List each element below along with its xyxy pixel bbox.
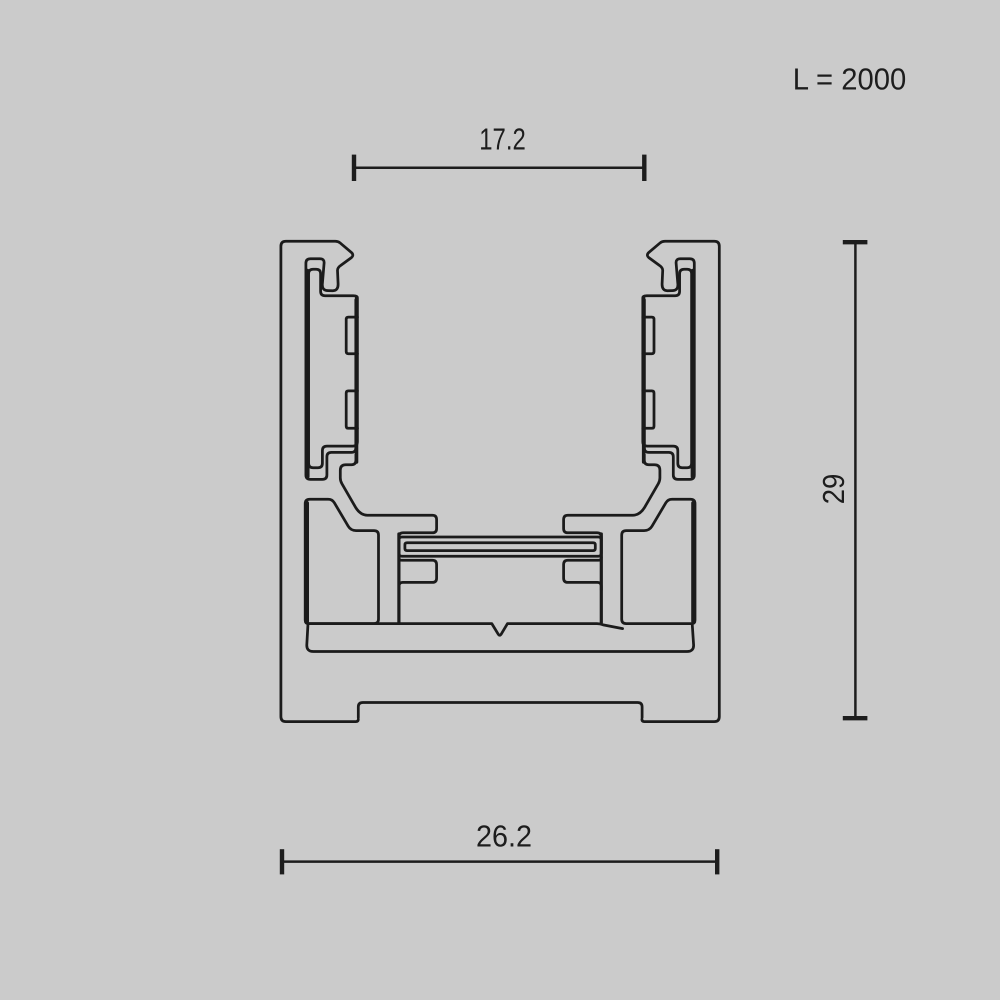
svg-text:L = 2000: L = 2000: [793, 63, 907, 97]
svg-text:26.2: 26.2: [476, 820, 532, 854]
svg-text:29: 29: [817, 474, 851, 505]
svg-text:17.2: 17.2: [479, 123, 526, 157]
